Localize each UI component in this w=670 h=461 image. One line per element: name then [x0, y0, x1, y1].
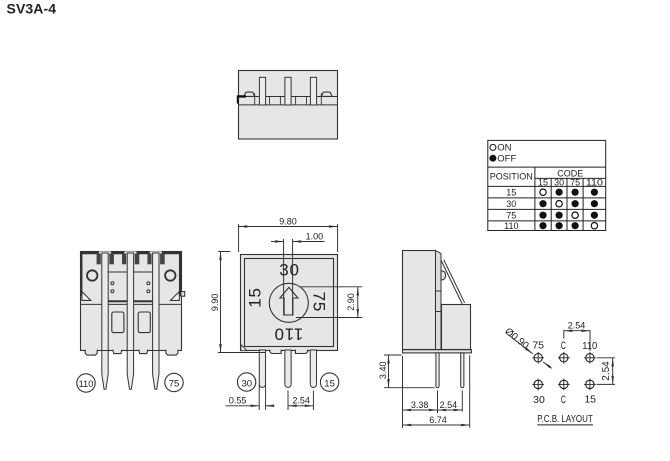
svg-text:15: 15 — [538, 177, 548, 187]
svg-text:30: 30 — [533, 394, 545, 406]
svg-text:75: 75 — [310, 292, 329, 313]
svg-text:75: 75 — [506, 210, 516, 220]
svg-text:2.54: 2.54 — [601, 361, 612, 381]
svg-text:6.74: 6.74 — [429, 415, 447, 425]
svg-text:ON: ON — [497, 142, 511, 153]
svg-text:110: 110 — [274, 325, 304, 344]
svg-text:15: 15 — [506, 187, 516, 197]
svg-text:75: 75 — [570, 177, 580, 187]
svg-text:15: 15 — [245, 287, 264, 308]
svg-text:2.54: 2.54 — [292, 395, 310, 405]
svg-text:C: C — [561, 340, 566, 352]
svg-text:15: 15 — [584, 394, 596, 406]
svg-text:SV3A-4: SV3A-4 — [7, 1, 57, 17]
svg-text:9.90: 9.90 — [210, 294, 220, 312]
svg-text:9.80: 9.80 — [279, 216, 297, 226]
svg-text:30: 30 — [279, 260, 300, 279]
svg-text:C: C — [561, 394, 566, 406]
svg-text:75: 75 — [532, 339, 544, 351]
svg-text:P.C.B. LAYOUT: P.C.B. LAYOUT — [537, 414, 593, 425]
svg-text:30: 30 — [554, 177, 564, 187]
svg-text:OFF: OFF — [497, 153, 516, 164]
svg-text:110: 110 — [504, 221, 518, 231]
svg-text:0.55: 0.55 — [229, 395, 247, 405]
svg-text:75: 75 — [169, 379, 180, 390]
svg-text:30: 30 — [242, 378, 253, 389]
svg-text:2.54: 2.54 — [568, 321, 586, 331]
svg-text:30: 30 — [506, 199, 516, 209]
svg-text:2.54: 2.54 — [440, 400, 458, 410]
svg-text:3.40: 3.40 — [378, 362, 388, 380]
svg-text:1.00: 1.00 — [306, 232, 324, 242]
svg-text:2.90: 2.90 — [346, 293, 356, 311]
svg-text:110: 110 — [586, 177, 603, 187]
svg-text:110: 110 — [79, 379, 94, 389]
svg-text:3.38: 3.38 — [411, 400, 429, 410]
svg-text:15: 15 — [324, 379, 335, 390]
svg-text:POSITION: POSITION — [490, 171, 533, 181]
